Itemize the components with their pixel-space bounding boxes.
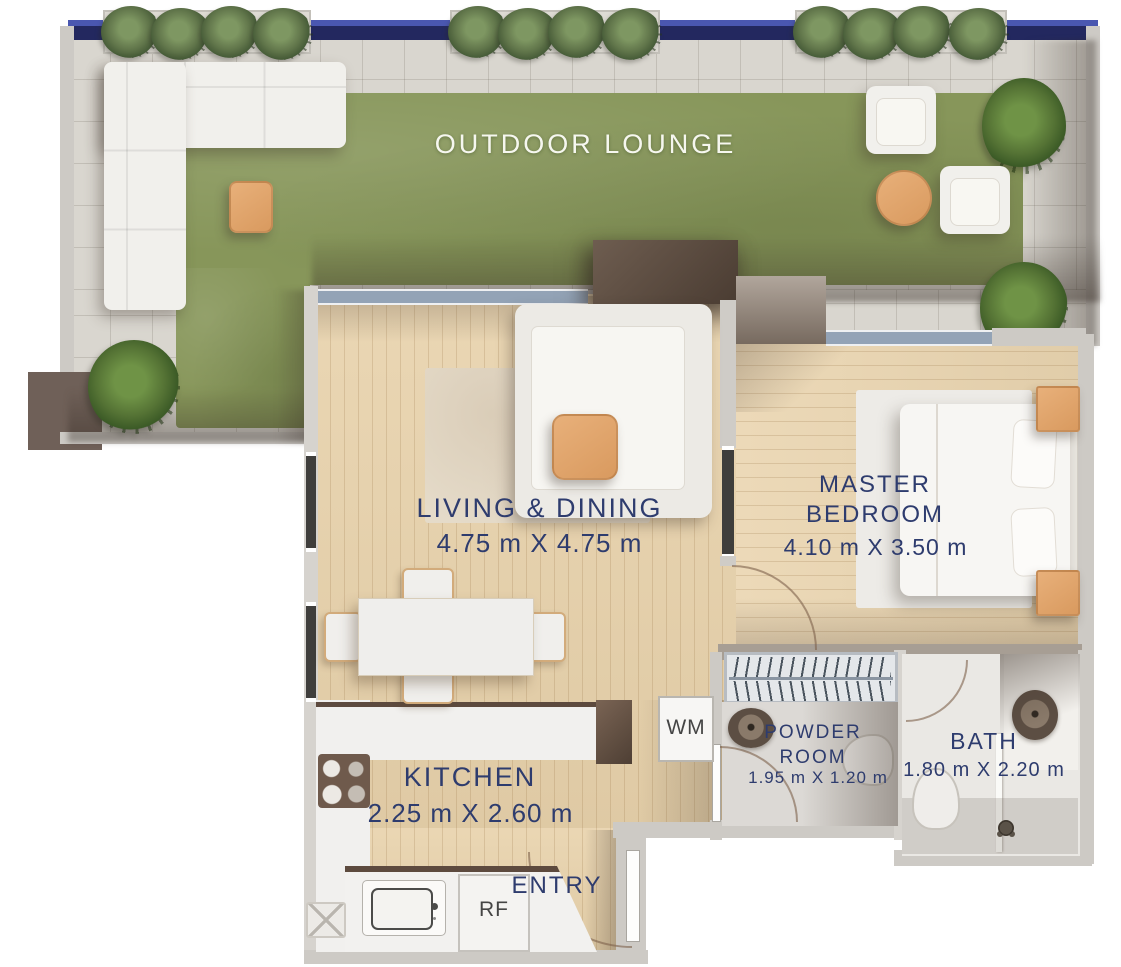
pillow: [1010, 507, 1057, 577]
sink-basin: [371, 888, 433, 930]
living-sofa: [515, 304, 712, 518]
bath-label: BATH: [908, 728, 1060, 756]
dining-chair: [324, 612, 362, 662]
nightstand: [1036, 386, 1080, 432]
armchair-seat: [876, 98, 926, 146]
grass-lawn-left-leg: [176, 268, 310, 428]
outdoor-armchair: [940, 166, 1010, 234]
nightstand: [1036, 570, 1080, 616]
hanger-row: [731, 681, 891, 701]
entry-label: ENTRY: [505, 872, 609, 901]
outdoor-lounge-label: OUTDOOR LOUNGE: [433, 126, 738, 163]
living-dining-dims: 4.75 m X 4.75 m: [392, 528, 687, 559]
wardrobe-hangers: [724, 652, 898, 704]
palm-tree-icon: [88, 340, 180, 434]
master-bedroom-dims: 4.10 m X 3.50 m: [763, 534, 988, 562]
powder-room-dims: 1.95 m X 1.20 m: [742, 768, 894, 788]
wall-bedroom-right: [1078, 334, 1094, 666]
floor-plan: WM RF OUTDOOR LOUNGE LIVING & DINING 4.7…: [0, 0, 1121, 967]
refrigerator-label: RF: [460, 898, 528, 922]
outer-wall-bottom-left: [60, 432, 315, 444]
window-living-left-1: [306, 452, 316, 552]
dining-table: [358, 598, 534, 676]
armchair-seat: [950, 178, 1000, 226]
outer-wall-right: [1086, 26, 1100, 346]
kitchen-tall-cabinet: [596, 700, 632, 764]
service-shaft: [306, 902, 346, 938]
closet-rail: [729, 677, 893, 680]
sink-faucet-icon: [431, 903, 438, 910]
bath-dims: 1.80 m X 2.20 m: [894, 758, 1074, 782]
powder-room-label: POWDER ROOM: [757, 720, 869, 770]
plant-icon: [201, 6, 261, 58]
window-living-left-2: [306, 602, 316, 702]
plant-icon: [893, 6, 953, 58]
outdoor-coffee-table: [229, 181, 273, 233]
window-living-bedroom: [722, 446, 734, 558]
wall-bath-right: [1078, 650, 1094, 864]
hanger-row: [731, 657, 891, 677]
master-bedroom-label: MASTER BEDROOM: [795, 470, 955, 530]
planter-box-3: [795, 10, 1007, 54]
wall-living-bump: [593, 240, 738, 304]
wall-between-doors: [736, 276, 826, 344]
sectional-sofa-vertical-arm: [104, 62, 186, 310]
wall-bottom: [304, 950, 648, 964]
plant-icon: [949, 8, 1009, 60]
outdoor-armchair: [866, 86, 936, 154]
outdoor-round-table: [876, 170, 932, 226]
kitchen-sink: [362, 880, 446, 936]
palm-tree-icon: [982, 78, 1066, 174]
bedroom-sliding-door-threshold: [826, 330, 994, 346]
plant-icon: [548, 6, 608, 58]
plant-icon: [602, 8, 662, 60]
wall-bedroom-top-right: [992, 328, 1086, 346]
kitchen-dims: 2.25 m X 2.60 m: [338, 798, 603, 829]
washing-machine-label: WM: [660, 716, 712, 740]
wall-living-bedroom: [720, 300, 736, 448]
living-dining-label: LIVING & DINING: [392, 492, 687, 524]
living-coffee-table: [552, 414, 618, 480]
kitchen-label: KITCHEN: [355, 761, 585, 793]
kitchen-counter-top: [316, 702, 598, 760]
planter-box-2: [450, 10, 660, 54]
shower-head-icon: [998, 820, 1014, 836]
living-sliding-door-threshold: [318, 289, 588, 305]
plant-icon: [253, 8, 313, 60]
planter-box-1: [103, 10, 311, 54]
wall-powder-left-bottom: [710, 820, 722, 840]
